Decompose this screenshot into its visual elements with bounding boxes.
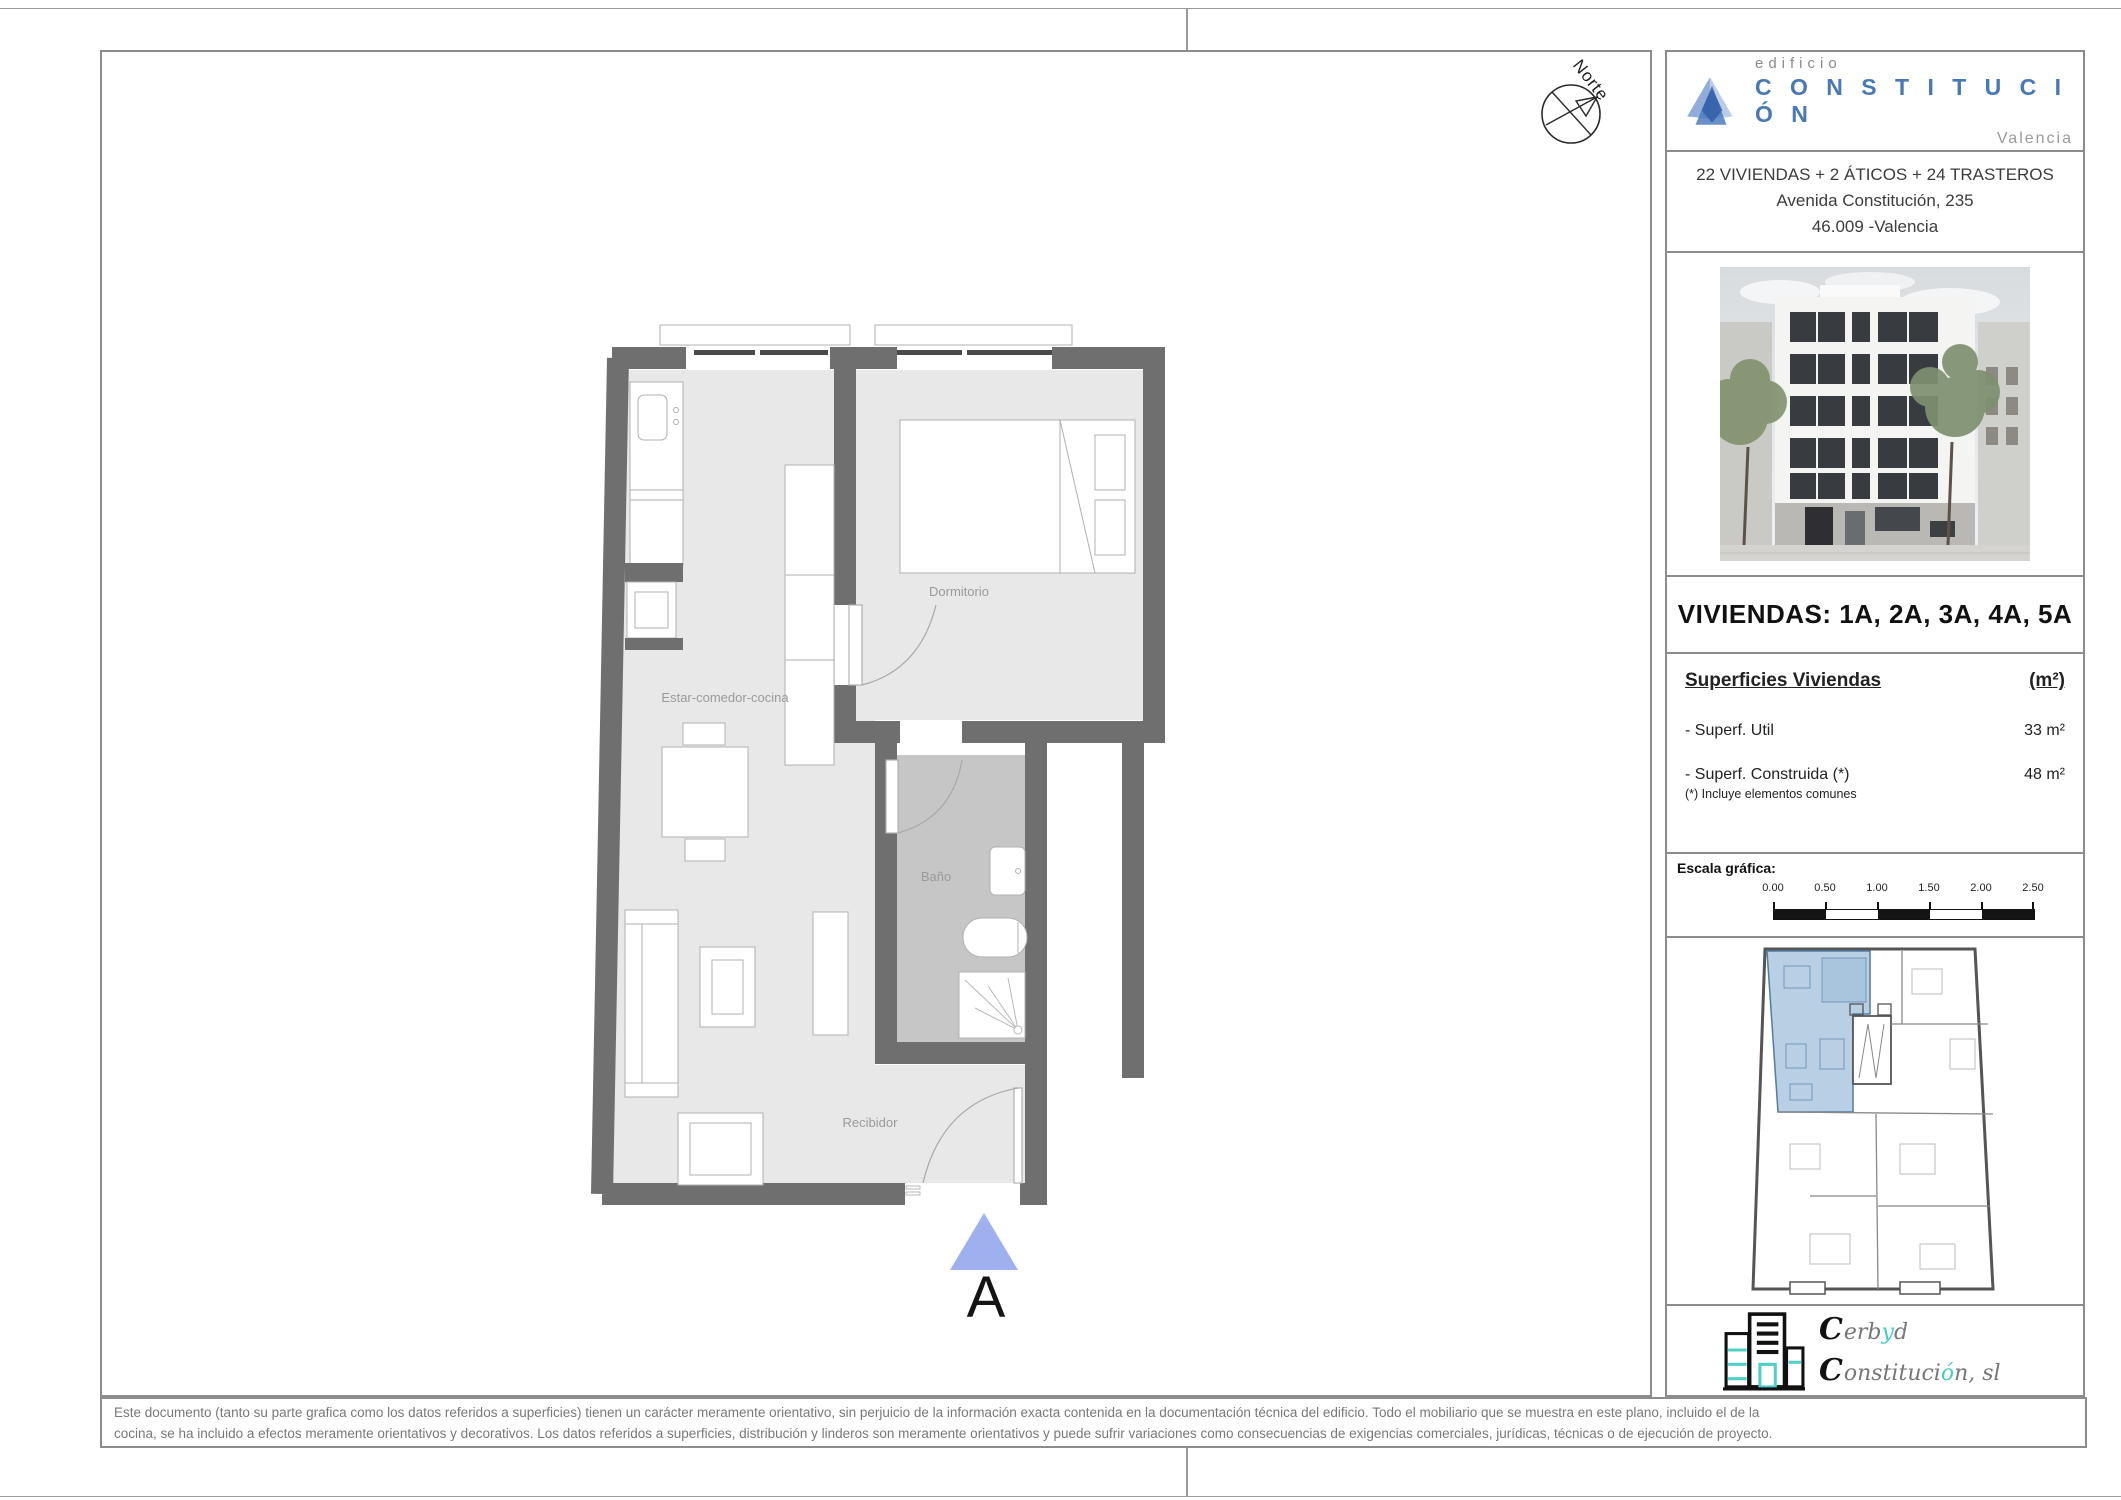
superficies-unit-header: (m²) [2029,670,2065,692]
cerbyd-logo-icon [1723,1311,1805,1391]
sheet-bottom-edge [0,1496,2121,1497]
room-label-bath: Baño [921,869,951,884]
keyplan-section [1667,938,2083,1306]
superficie-util-label: - Superf. Util [1685,722,1774,740]
unit-marker-letter: A [946,1264,1026,1331]
sheet-bottom-fold-mark [1186,1448,1188,1497]
room-label-hall: Recibidor [843,1115,899,1130]
bed [900,420,1135,573]
cerbyd-section: Cerbyd Constitución, sl [1667,1306,2083,1395]
footer-disclaimer: Este documento (tanto su parte grafica c… [100,1397,2087,1448]
project-summary: 22 VIVIENDAS + 2 ÁTICOS + 24 TRASTEROS [1667,162,2083,188]
room-label-bedroom: Dormitorio [929,584,989,599]
superficies-header: Superficies Viviendas [1685,670,1881,692]
viviendas-section: VIVIENDAS: 1A, 2A, 3A, 4A, 5A [1667,577,2083,654]
sheet-top-edge [0,8,2121,9]
project-address: Avenida Constitución, 235 [1667,188,2083,214]
title-block: edificio C O N S T I T U C I Ó N Valenci… [1665,50,2085,1397]
superficies-note: (*) Incluye elementos comunes [1685,787,2065,801]
kitchen-tall-units [785,465,834,765]
logo-line-edificio: edificio [1755,55,2073,72]
project-city: 46.009 -Valencia [1667,214,2083,240]
cerbyd-name-line2: Constitución, sl [1819,1351,2001,1392]
scale-tick-3: 1.50 [1918,882,1939,894]
escala-section: Escala gráfica: 0.00 0.50 1.00 1.50 2.00… [1667,854,2083,939]
logo-line-constitucion: C O N S T I T U C I Ó N [1755,74,2073,128]
superficies-section: Superficies Viviendas (m²) - Superf. Uti… [1667,654,2083,853]
escala-label: Escala gráfica: [1677,860,2073,876]
logo-line-valencia: Valencia [1755,130,2073,148]
viviendas-title: VIVIENDAS: 1A, 2A, 3A, 4A, 5A [1678,599,2073,630]
drawing-frame: Norte [100,50,1652,1397]
room-label-living: Estar-comedor-cocina [661,690,789,705]
scale-tick-4: 2.00 [1970,882,1991,894]
scale-tick-1: 0.50 [1814,882,1835,894]
project-info-section: 22 VIVIENDAS + 2 ÁTICOS + 24 TRASTEROS A… [1667,152,2083,253]
building-render-image [1720,267,2030,561]
kitchen-counter [630,382,683,565]
scale-tick-0: 0.00 [1762,882,1783,894]
sheet-top-fold-mark [1186,8,1188,50]
floor-plan: Estar-comedor-cocina Dormitorio Baño Rec… [590,320,1170,1220]
footer-line-2: cocina, se ha incluido a efectos meramen… [114,1424,2073,1445]
scale-bar: 0.00 0.50 1.00 1.50 2.00 2.50 [1773,898,2035,922]
scale-tick-5: 2.50 [2022,882,2043,894]
scale-tick-2: 1.00 [1866,882,1887,894]
keyplan-image [1750,944,2000,1299]
superficie-util-value: 33 m² [2024,722,2065,740]
superficie-construida-value: 48 m² [2024,766,2065,784]
cerbyd-name-line1: Cerbyd [1819,1310,2001,1351]
building-render-section [1667,253,2083,578]
footer-line-1: Este documento (tanto su parte grafica c… [114,1403,2073,1424]
superficie-construida-label: - Superf. Construida (*) [1685,766,1850,784]
edificio-logo-icon [1681,71,1743,131]
logo-section: edificio C O N S T I T U C I Ó N Valenci… [1667,52,2083,152]
unit-marker-triangle [950,1213,1018,1270]
